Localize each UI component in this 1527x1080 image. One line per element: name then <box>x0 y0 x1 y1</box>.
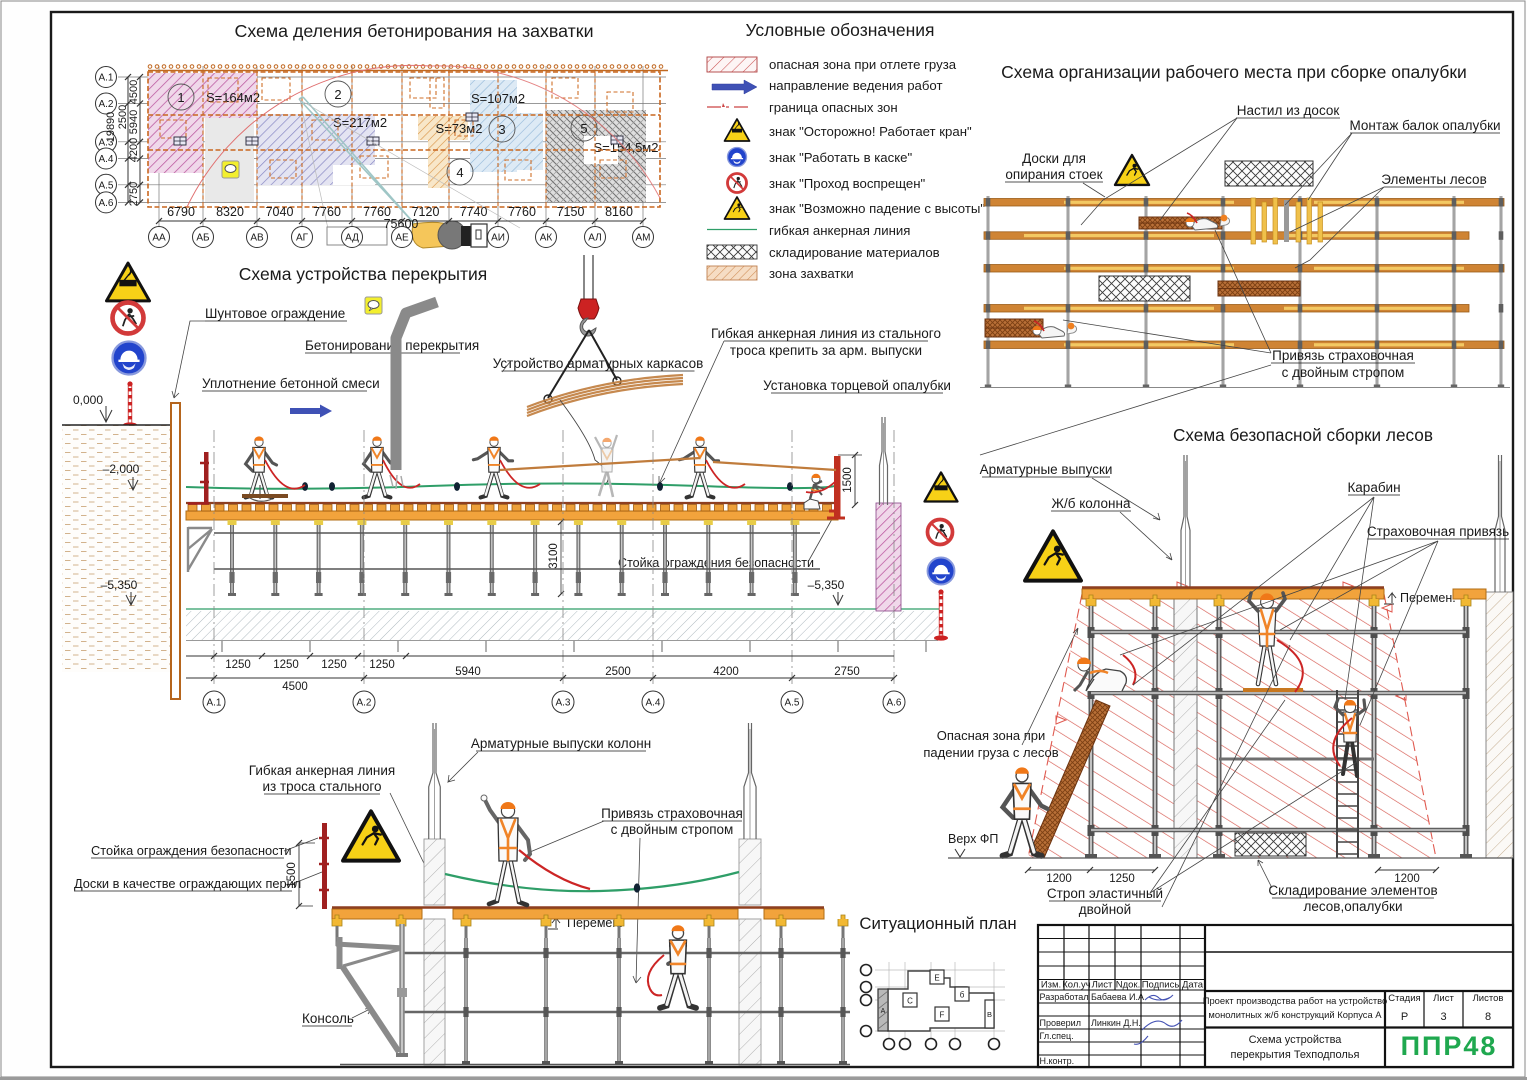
svg-text:Схема безопасной сборки лесов: Схема безопасной сборки лесов <box>1173 425 1433 445</box>
svg-text:1250: 1250 <box>273 659 299 671</box>
svg-text:А.1: А.1 <box>206 698 221 709</box>
svg-text:Арматурные выпуски колонн: Арматурные выпуски колонн <box>471 736 651 751</box>
svg-text:АИ: АИ <box>491 233 505 244</box>
svg-text:F: F <box>940 1011 945 1020</box>
svg-text:Линкин Д.Н.: Линкин Д.Н. <box>1091 1018 1141 1028</box>
svg-text:Стадия: Стадия <box>1388 993 1420 1004</box>
svg-text:А.4: А.4 <box>98 154 113 165</box>
svg-text:1500: 1500 <box>842 467 854 493</box>
svg-text:из троса стального: из троса стального <box>263 779 382 794</box>
svg-text:АЕ: АЕ <box>395 233 409 244</box>
svg-text:7760: 7760 <box>313 205 341 219</box>
svg-text:Привязь страховочная: Привязь страховочная <box>1272 348 1414 363</box>
svg-text:Карабин: Карабин <box>1347 480 1400 495</box>
svg-text:–5,350: –5,350 <box>101 578 138 592</box>
svg-text:опирания стоек: опирания стоек <box>1005 167 1102 182</box>
svg-text:Гибкая анкерная линия из сталь: Гибкая анкерная линия из стального <box>711 326 941 341</box>
svg-text:граница опасных зон: граница опасных зон <box>769 100 898 115</box>
svg-text:А.2: А.2 <box>98 99 113 110</box>
svg-text:АМ: АМ <box>636 233 651 244</box>
svg-text:с двойным стропом: с двойным стропом <box>611 822 734 837</box>
svg-text:складирование материалов: складирование материалов <box>769 245 940 260</box>
svg-text:2750: 2750 <box>834 666 860 678</box>
svg-text:1250: 1250 <box>225 659 251 671</box>
svg-text:Подпись: Подпись <box>1142 980 1180 991</box>
svg-text:–2,000: –2,000 <box>103 462 140 476</box>
svg-text:Е: Е <box>934 974 939 983</box>
svg-text:5940: 5940 <box>455 666 481 678</box>
svg-text:Консоль: Консоль <box>302 1011 354 1026</box>
svg-text:С: С <box>907 997 913 1006</box>
svg-text:7740: 7740 <box>460 205 488 219</box>
svg-text:8160: 8160 <box>605 205 633 219</box>
svg-text:Условные обозначения: Условные обозначения <box>745 20 934 40</box>
svg-text:S=164м2: S=164м2 <box>206 90 260 105</box>
svg-text:3100: 3100 <box>548 543 560 569</box>
svg-text:1: 1 <box>177 90 184 105</box>
svg-text:А.4: А.4 <box>645 698 660 709</box>
svg-text:Уплотнение бетонной смеси: Уплотнение бетонной смеси <box>202 376 380 391</box>
svg-text:А.2: А.2 <box>356 698 371 709</box>
svg-text:Схема устройства: Схема устройства <box>1249 1034 1343 1046</box>
svg-text:лесов,опалубки: лесов,опалубки <box>1303 899 1402 914</box>
svg-text:АБ: АБ <box>196 233 210 244</box>
svg-text:зона захватки: зона захватки <box>769 266 854 281</box>
svg-text:Гл.спец.: Гл.спец. <box>1040 1031 1074 1041</box>
svg-text:Гибкая анкерная линия: Гибкая анкерная линия <box>249 763 395 778</box>
svg-text:Настил из досок: Настил из досок <box>1237 103 1340 118</box>
svg-text:А.5: А.5 <box>784 698 799 709</box>
svg-text:Арматурные выпуски: Арматурные выпуски <box>980 462 1113 477</box>
svg-text:4200: 4200 <box>713 666 739 678</box>
svg-text:1250: 1250 <box>1109 873 1135 885</box>
svg-text:Страховочная привязь: Страховочная привязь <box>1367 524 1509 539</box>
svg-text:8320: 8320 <box>216 205 244 219</box>
svg-text:падении груза с лесов: падении груза с лесов <box>923 745 1058 760</box>
svg-text:Ж/б колонна: Ж/б колонна <box>1052 496 1131 511</box>
svg-text:Элементы лесов: Элементы лесов <box>1381 172 1487 187</box>
svg-text:ППР48: ППР48 <box>1401 1031 1498 1061</box>
svg-text:Кол.уч: Кол.уч <box>1062 980 1091 991</box>
svg-text:А.1: А.1 <box>98 73 113 84</box>
svg-text:В: В <box>987 1010 992 1019</box>
svg-text:2500: 2500 <box>117 105 129 129</box>
svg-text:5940: 5940 <box>128 110 140 134</box>
svg-text:2: 2 <box>334 87 341 102</box>
svg-text:Складирование элементов: Складирование элементов <box>1268 883 1437 898</box>
svg-text:Привязь страховочная: Привязь страховочная <box>601 806 743 821</box>
svg-text:знак "Возможно падение с высот: знак "Возможно падение с высоты" <box>769 201 985 216</box>
svg-text:S=154,5м2: S=154,5м2 <box>594 140 659 155</box>
svg-text:троса крепить за арм. выпуски: троса крепить за арм. выпуски <box>730 343 922 358</box>
svg-text:АК: АК <box>540 233 553 244</box>
svg-text:Дата: Дата <box>1182 980 1204 991</box>
svg-text:Устройство арматурных каркасов: Устройство арматурных каркасов <box>493 356 704 371</box>
svg-text:АД: АД <box>345 233 359 244</box>
svg-text:7760: 7760 <box>508 205 536 219</box>
svg-text:знак "Проход воспрещен": знак "Проход воспрещен" <box>769 176 926 191</box>
svg-text:1250: 1250 <box>369 659 395 671</box>
svg-text:АГ: АГ <box>296 233 309 244</box>
svg-text:2750: 2750 <box>128 182 140 206</box>
svg-text:Стойка ограждения безопасности: Стойка ограждения безопасности <box>91 843 292 858</box>
svg-text:4200: 4200 <box>128 138 140 162</box>
svg-text:Проверил: Проверил <box>1040 1018 1081 1028</box>
svg-text:Доски в качестве ограждающих п: Доски в качестве ограждающих перил <box>74 876 301 891</box>
svg-text:1250: 1250 <box>321 659 347 671</box>
svg-text:Стойка ограждения безопасности: Стойка ограждения безопасности <box>618 556 814 570</box>
svg-text:АЛ: АЛ <box>588 233 601 244</box>
svg-text:Шунтовое ограждение: Шунтовое ограждение <box>205 306 345 321</box>
svg-text:Проект производства работ на у: Проект производства работ на устройство <box>1203 995 1388 1006</box>
svg-text:АВ: АВ <box>250 233 264 244</box>
svg-text:3: 3 <box>498 122 505 137</box>
svg-text:1200: 1200 <box>1046 873 1072 885</box>
svg-text:направление ведения работ: направление ведения работ <box>769 78 943 93</box>
svg-text:Листов: Листов <box>1473 993 1504 1004</box>
svg-text:АА: АА <box>152 233 166 244</box>
svg-text:S=217м2: S=217м2 <box>333 115 387 130</box>
svg-text:б: б <box>960 991 965 1000</box>
svg-text:4: 4 <box>456 165 463 180</box>
svg-text:А: А <box>881 1008 886 1015</box>
svg-text:А.5: А.5 <box>98 180 113 191</box>
svg-text:Изм.: Изм. <box>1041 980 1061 991</box>
svg-text:Верх ФП: Верх ФП <box>948 832 998 846</box>
svg-text:Перемен.: Перемен. <box>1400 591 1456 605</box>
svg-text:–5,350: –5,350 <box>808 578 845 592</box>
svg-text:7040: 7040 <box>266 205 294 219</box>
svg-text:А.3: А.3 <box>555 698 570 709</box>
svg-text:Ситуационный план: Ситуационный план <box>859 914 1016 933</box>
svg-text:4500: 4500 <box>282 681 308 693</box>
svg-text:знак "Осторожно! Работает кран: знак "Осторожно! Работает кран" <box>769 124 972 139</box>
svg-text:Схема организации рабочего мес: Схема организации рабочего места при сбо… <box>1001 62 1467 82</box>
svg-text:Строп эластичный: Строп эластичный <box>1047 886 1163 901</box>
svg-text:А.6: А.6 <box>886 698 901 709</box>
svg-text:Лист: Лист <box>1092 980 1113 991</box>
svg-text:5: 5 <box>580 121 587 136</box>
svg-text:6790: 6790 <box>167 205 195 219</box>
svg-text:Разработал: Разработал <box>1040 992 1089 1002</box>
svg-text:А.6: А.6 <box>98 198 113 209</box>
svg-text:монолитных ж/б конструкций Кор: монолитных ж/б конструкций Корпуса А <box>1208 1009 1382 1020</box>
svg-text:перекрытия Техподполья: перекрытия Техподполья <box>1230 1049 1359 1061</box>
svg-text:знак "Работать в каске": знак "Работать в каске" <box>769 150 912 165</box>
svg-text:Схема устройства перекрытия: Схема устройства перекрытия <box>239 264 487 284</box>
svg-text:Р: Р <box>1401 1011 1408 1023</box>
svg-text:Монтаж балок опалубки: Монтаж балок опалубки <box>1349 118 1500 133</box>
svg-text:0,000: 0,000 <box>73 393 103 407</box>
svg-text:Установка торцевой опалубки: Установка торцевой опалубки <box>763 378 951 393</box>
svg-text:Лист: Лист <box>1433 993 1454 1004</box>
svg-text:Nдок.: Nдок. <box>1116 980 1140 991</box>
svg-text:8: 8 <box>1485 1011 1491 1023</box>
svg-text:S=73м2: S=73м2 <box>436 121 483 136</box>
svg-text:Схема деления бетонирования на: Схема деления бетонирования на захватки <box>234 21 593 41</box>
svg-text:Бабаева И.А: Бабаева И.А <box>1091 992 1144 1002</box>
svg-text:19890: 19890 <box>105 112 117 143</box>
svg-text:Н.контр.: Н.контр. <box>1040 1056 1075 1066</box>
svg-text:гибкая анкерная линия: гибкая анкерная линия <box>769 223 910 238</box>
svg-text:4500: 4500 <box>128 80 140 104</box>
svg-text:двойной: двойной <box>1079 902 1131 917</box>
svg-text:3: 3 <box>1440 1011 1446 1023</box>
svg-text:Доски для: Доски для <box>1022 151 1086 166</box>
svg-text:1500: 1500 <box>286 862 298 888</box>
svg-text:7150: 7150 <box>557 205 585 219</box>
svg-text:2500: 2500 <box>605 666 631 678</box>
svg-text:опасная зона при отлете груза: опасная зона при отлете груза <box>769 57 957 72</box>
svg-text:с двойным стропом: с двойным стропом <box>1282 365 1405 380</box>
